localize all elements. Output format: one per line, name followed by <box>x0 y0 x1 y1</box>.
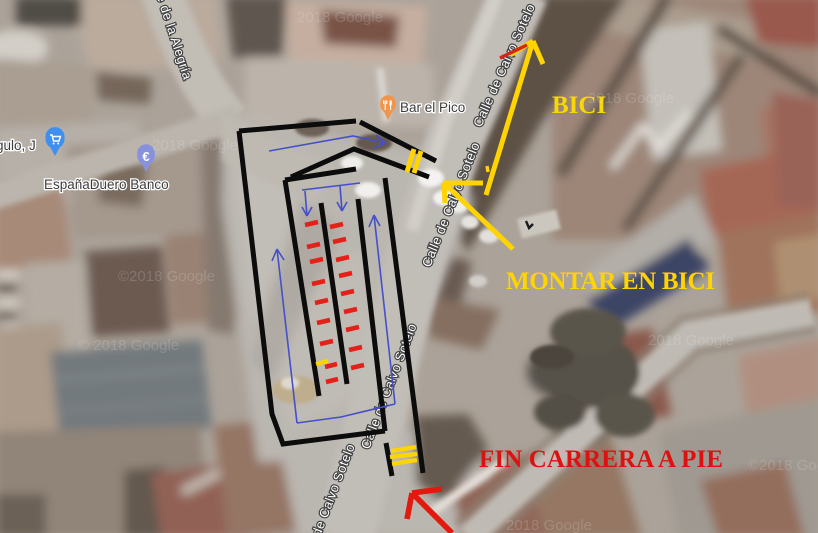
svg-text:2018 Google: 2018 Google <box>648 332 734 349</box>
svg-text:©2018 Google: ©2018 Google <box>118 268 215 285</box>
svg-text:2018 Google: 2018 Google <box>297 9 383 26</box>
svg-text:2018 Google: 2018 Google <box>152 137 238 154</box>
svg-text:MONTAR EN BICI: MONTAR EN BICI <box>506 268 715 295</box>
svg-text:€: € <box>142 149 149 164</box>
svg-text:FIN CARRERA A PIE: FIN CARRERA A PIE <box>479 446 723 473</box>
svg-text:EspañaDuero Banco: EspañaDuero Banco <box>44 177 169 192</box>
svg-text:2018 Google: 2018 Google <box>506 517 592 533</box>
svg-text:Bar el Pico: Bar el Pico <box>400 100 465 115</box>
svg-text:2018 Google: 2018 Google <box>588 90 674 107</box>
svg-text:gulo, J: gulo, J <box>0 138 36 153</box>
svg-text:©2018 Goog: ©2018 Goog <box>748 457 818 474</box>
svg-text:© 2018 Google: © 2018 Google <box>78 337 179 354</box>
